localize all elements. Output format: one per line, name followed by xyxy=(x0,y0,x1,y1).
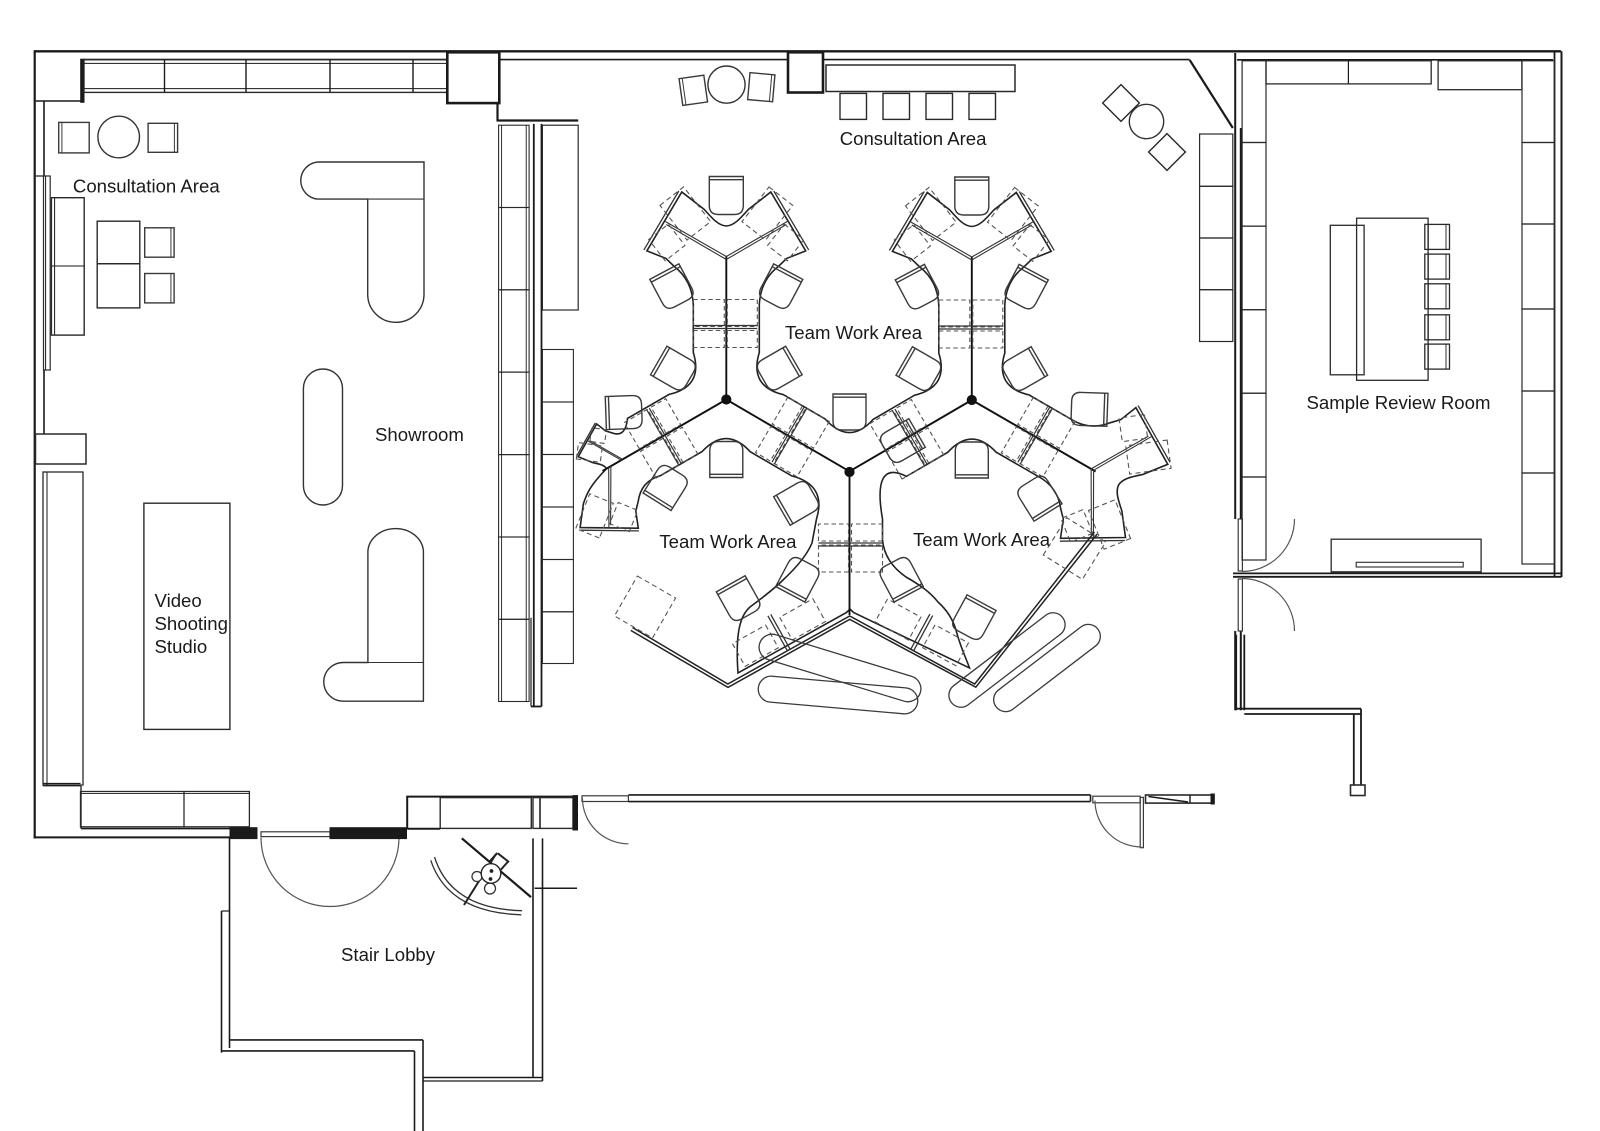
svg-text:Studio: Studio xyxy=(155,636,208,657)
svg-text:Shooting: Shooting xyxy=(155,613,228,634)
svg-text:Stair Lobby: Stair Lobby xyxy=(341,944,436,965)
svg-text:Team Work Area: Team Work Area xyxy=(785,322,923,343)
svg-text:Team Work Area: Team Work Area xyxy=(659,531,797,552)
svg-text:Video: Video xyxy=(155,590,202,611)
svg-text:Consultation Area: Consultation Area xyxy=(73,176,220,197)
svg-text:Showroom: Showroom xyxy=(375,424,464,445)
svg-text:Sample Review Room: Sample Review Room xyxy=(1307,392,1491,413)
svg-text:Consultation Area: Consultation Area xyxy=(840,128,987,149)
svg-text:Team Work Area: Team Work Area xyxy=(913,529,1051,550)
